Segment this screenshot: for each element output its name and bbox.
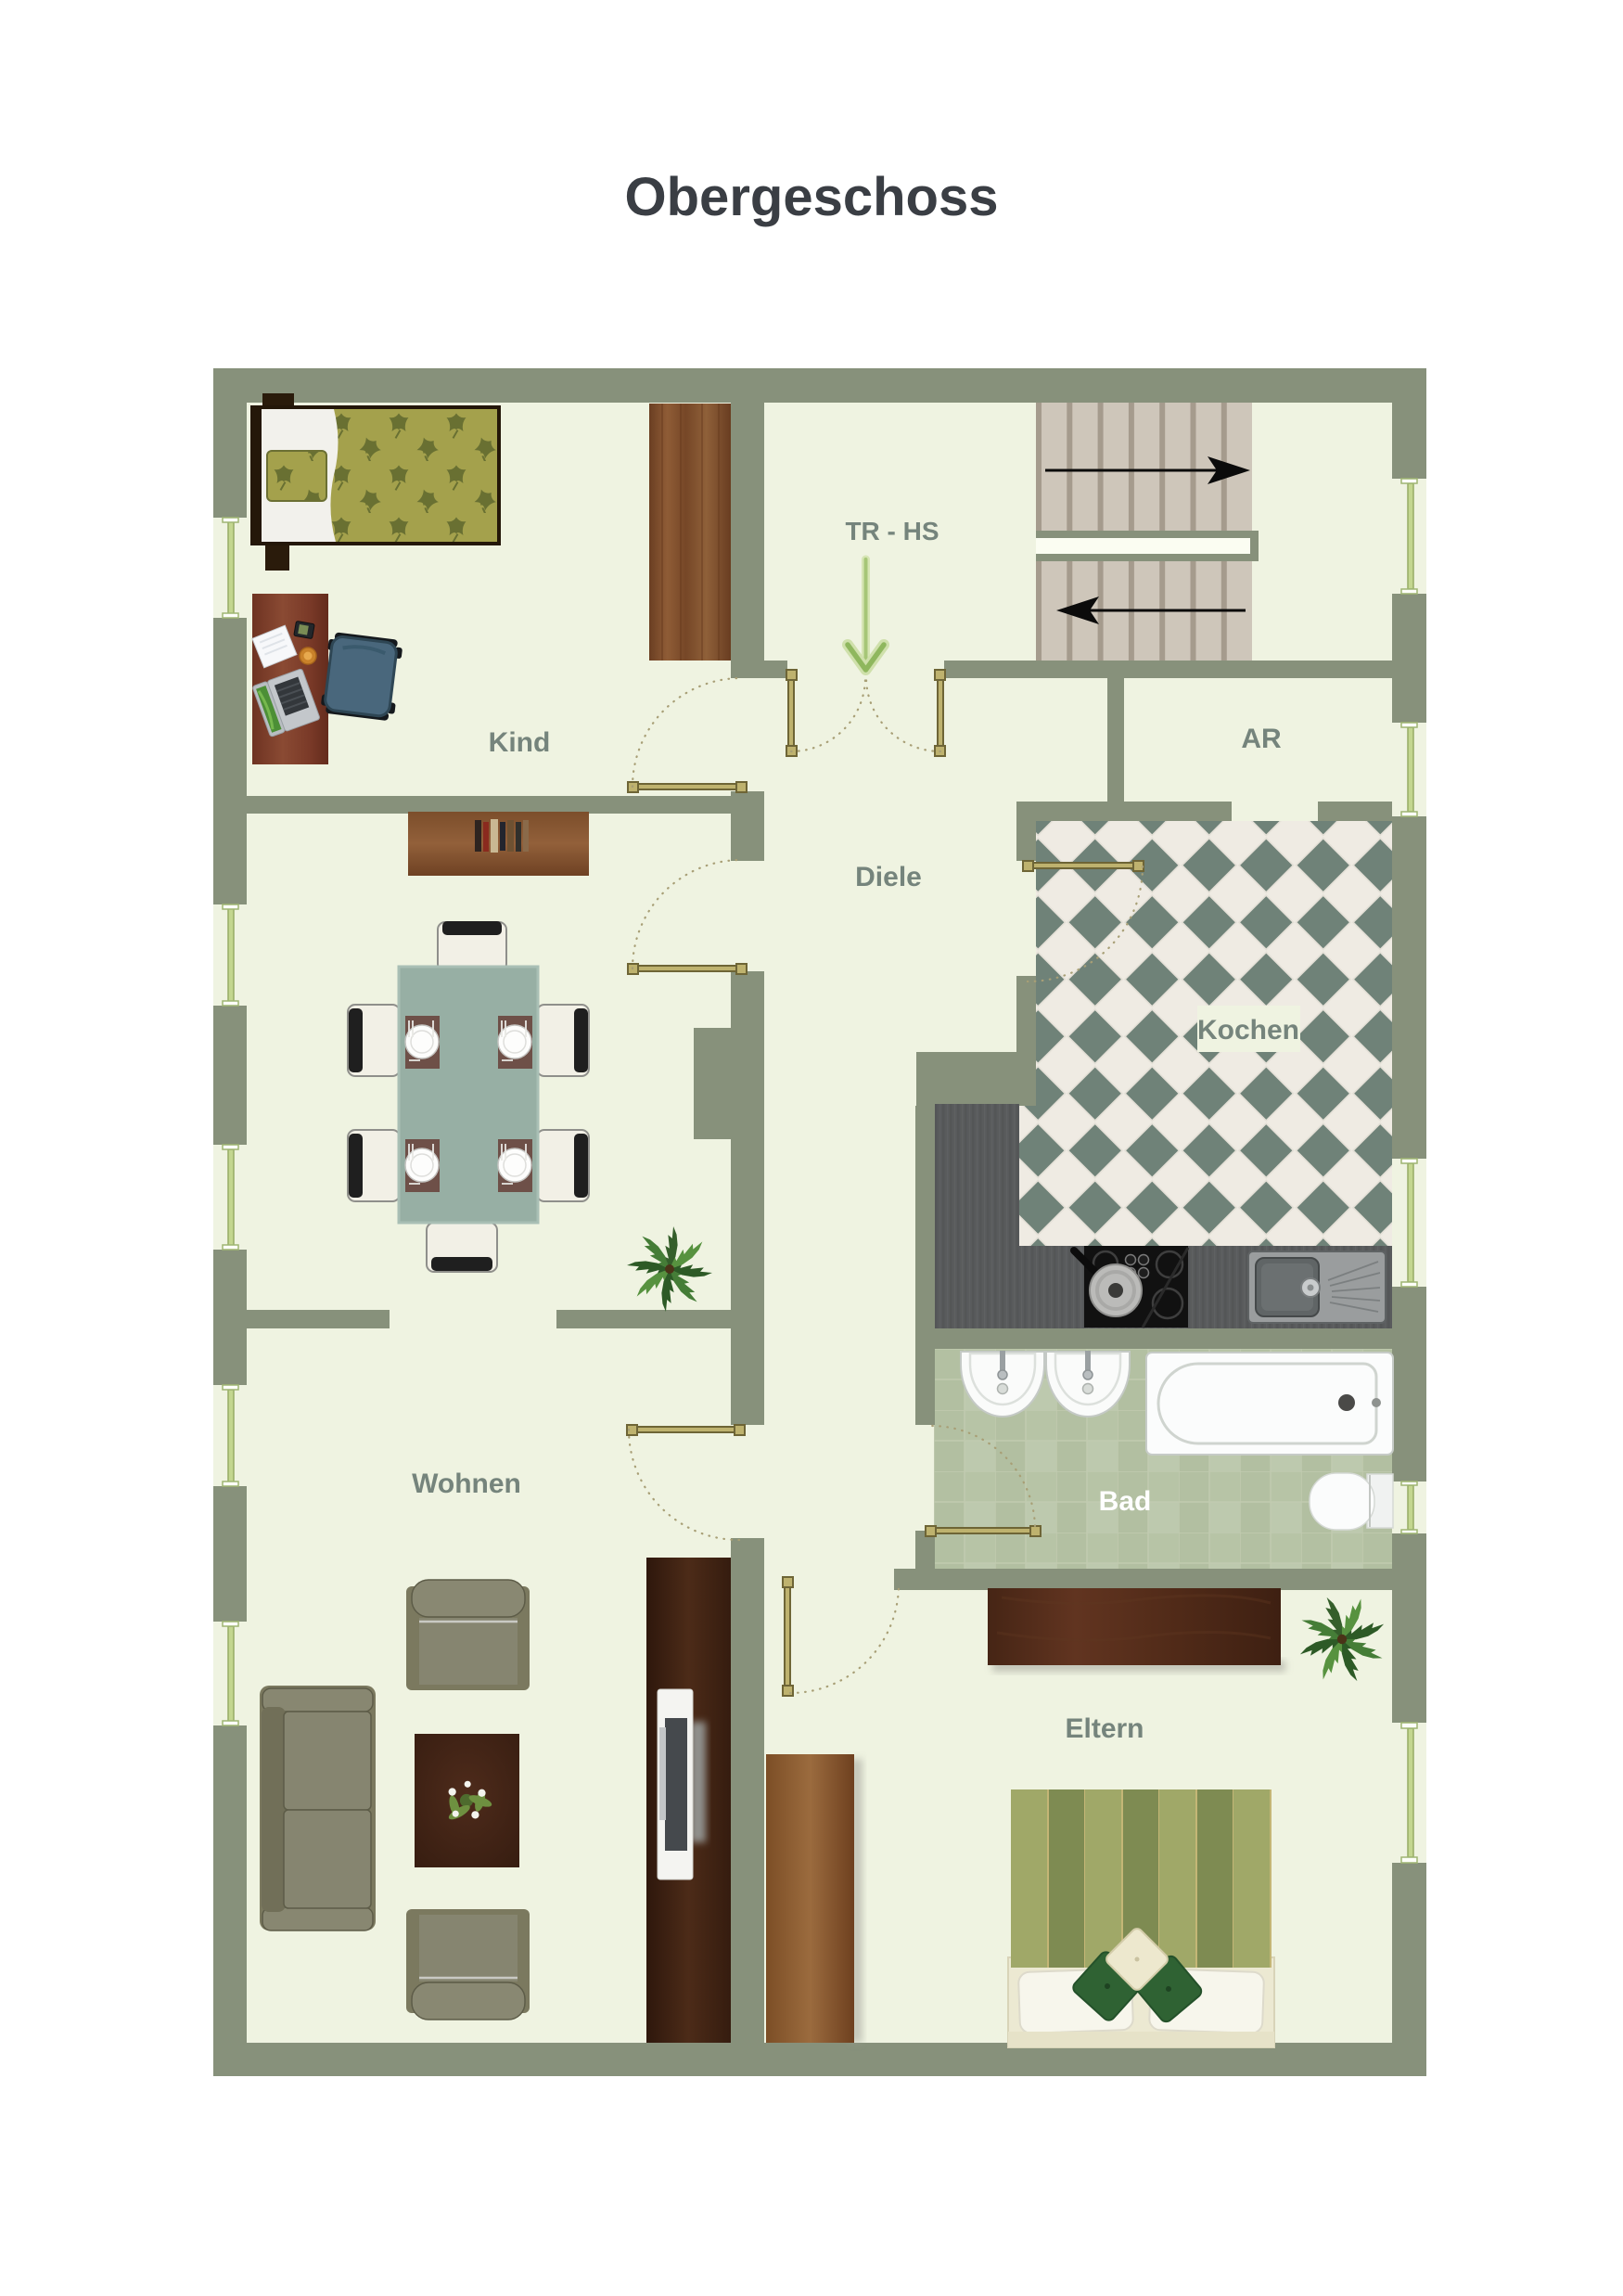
svg-text:Kochen: Kochen xyxy=(1197,1015,1299,1045)
svg-text:Eltern: Eltern xyxy=(1065,1713,1144,1744)
svg-text:Bad: Bad xyxy=(1099,1486,1152,1517)
svg-text:TR - HS: TR - HS xyxy=(845,517,939,545)
svg-text:AR: AR xyxy=(1241,724,1282,754)
svg-text:Kind: Kind xyxy=(489,727,551,758)
svg-text:Wohnen: Wohnen xyxy=(412,1469,521,1499)
svg-text:Diele: Diele xyxy=(855,862,922,892)
svg-text:Obergeschoss: Obergeschoss xyxy=(625,167,999,227)
